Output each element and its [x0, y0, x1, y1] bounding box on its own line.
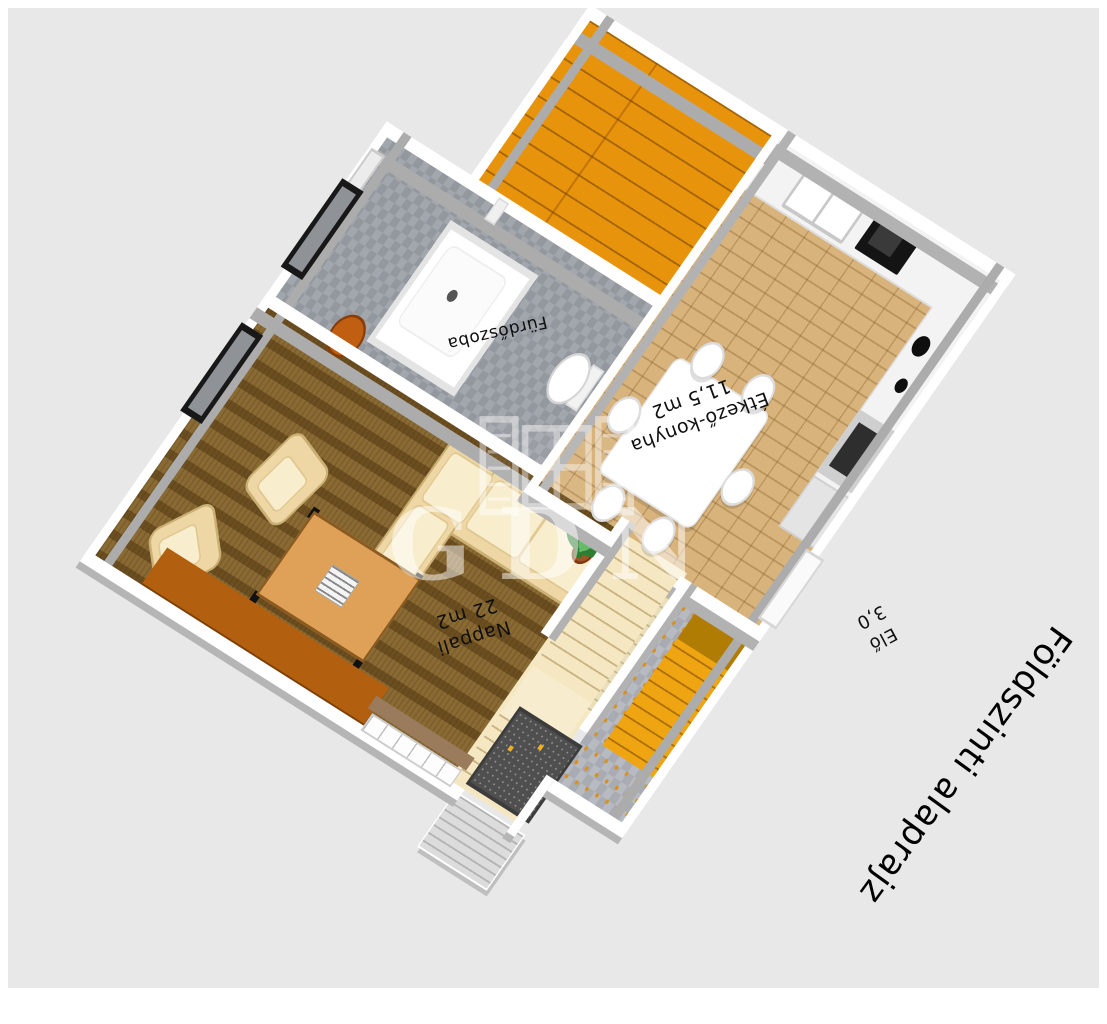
plan-title: Földszinti alaprajz — [851, 618, 1079, 911]
microwave-window — [867, 225, 902, 258]
armchair-seat — [255, 453, 309, 514]
magazine — [315, 564, 360, 607]
floorplan-scene: GDN Nappali 22 m2 Étkező-konyha 11,5 m2 … — [8, 8, 1099, 988]
room-label-eloszoba: Elő 3,0 — [852, 599, 902, 657]
